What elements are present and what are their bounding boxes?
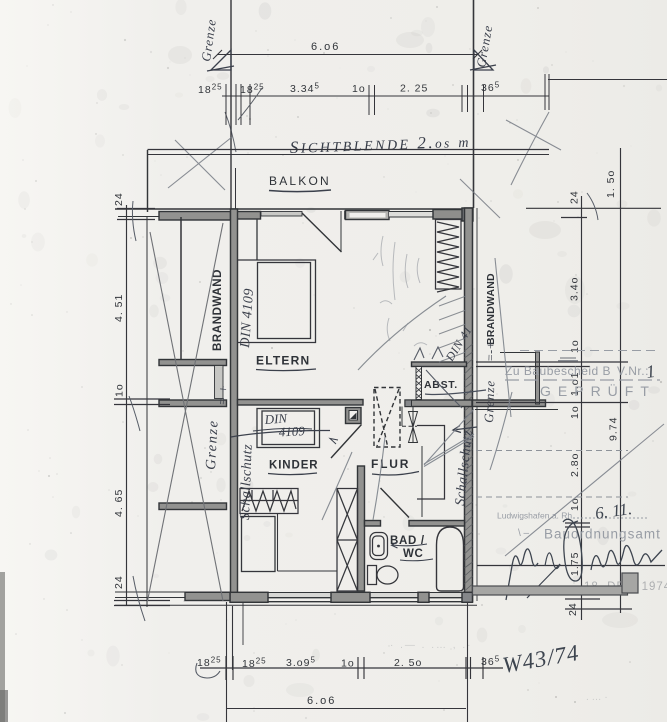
svg-text:V.Nr.:: V.Nr.:	[617, 364, 649, 378]
svg-text:1. 5o: 1. 5o	[605, 170, 617, 198]
svg-text:Grenze: Grenze	[481, 380, 497, 424]
svg-text:ELTERN: ELTERN	[256, 354, 310, 368]
svg-text:BRANDWAND: BRANDWAND	[212, 269, 224, 351]
svg-text:BALKON: BALKON	[269, 174, 331, 188]
svg-text:GEPRÜFT: GEPRÜFT	[540, 382, 656, 399]
svg-text:KINDER: KINDER	[269, 460, 319, 472]
svg-text:4. 65: 4. 65	[113, 489, 125, 517]
svg-text:. … ·: . … ·	[586, 692, 608, 703]
svg-text:FLUR: FLUR	[371, 457, 410, 471]
svg-text:= +: = +	[214, 384, 231, 406]
svg-text:· .— . .… , .·: · .— . .… , .·	[390, 640, 472, 651]
svg-text:2. 5o: 2. 5o	[394, 657, 422, 669]
svg-text:Ludwigshafen a. Rh.: Ludwigshafen a. Rh.	[497, 511, 575, 521]
svg-text:ABST.: ABST.	[424, 379, 458, 391]
svg-text:6.o6: 6.o6	[311, 41, 340, 53]
svg-text:2.8o: 2.8o	[569, 453, 581, 477]
svg-text:2. 25: 2. 25	[400, 83, 428, 95]
svg-text:1o: 1o	[569, 497, 581, 511]
svg-text:=-+: =-+	[483, 341, 498, 362]
svg-text:4. 51: 4. 51	[113, 294, 125, 322]
svg-text:24: 24	[569, 190, 581, 204]
svg-text:Zu Baubescheid B: Zu Baubescheid B	[505, 364, 611, 378]
svg-text:\ –: \ –	[518, 528, 530, 539]
svg-text:24: 24	[113, 575, 125, 589]
svg-text:BRANDWAND: BRANDWAND	[485, 273, 497, 345]
svg-text:Schallschutz: Schallschutz	[238, 444, 256, 521]
svg-text:Grenze: Grenze	[203, 419, 222, 470]
svg-text:3.4o: 3.4o	[569, 277, 581, 301]
svg-text:Bauordnungsamt: Bauordnungsamt	[544, 527, 661, 542]
svg-text:1o: 1o	[352, 83, 366, 95]
svg-text:24: 24	[113, 192, 125, 206]
svg-text:1o: 1o	[341, 658, 355, 670]
svg-text:1.75: 1.75	[569, 552, 581, 576]
svg-text:24: 24	[567, 602, 579, 616]
svg-text:1o: 1o	[114, 383, 126, 397]
svg-text:9.74: 9.74	[608, 417, 620, 441]
svg-text:1o: 1o	[569, 405, 581, 419]
svg-text:WC: WC	[403, 548, 424, 560]
svg-text:6.o6: 6.o6	[307, 695, 336, 707]
